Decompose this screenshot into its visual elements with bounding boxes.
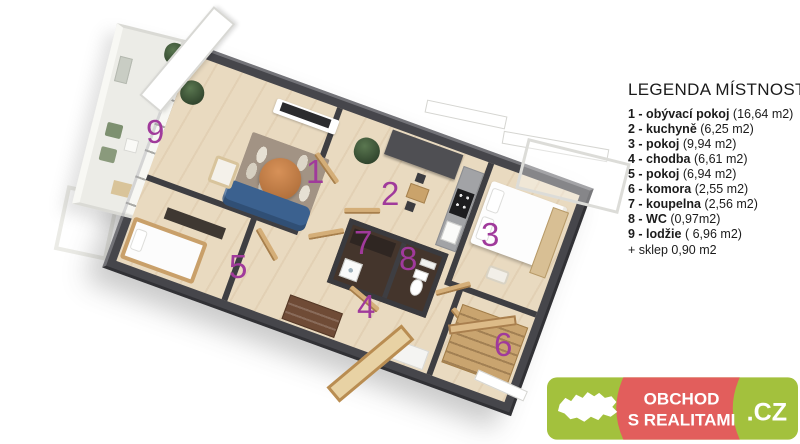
legend-item-area: (6,25 m2) <box>700 122 754 136</box>
balcony-chair <box>98 146 117 163</box>
legend-item-label: 2 - kuchyně <box>628 122 697 136</box>
legend-item: 9 - lodžie ( 6,96 m2) <box>628 227 800 242</box>
kitchen-plant <box>350 134 383 167</box>
legend-item-area: (2,56 m2) <box>704 197 758 211</box>
logo-red-band <box>616 377 739 439</box>
legend-item-area: (6,61 m2) <box>694 152 748 166</box>
room-number-3: 3 <box>481 218 499 251</box>
tv-stand <box>273 98 340 135</box>
balcony-table <box>123 138 139 154</box>
legend-item: 7 - koupelna (2,56 m2) <box>628 197 800 212</box>
legend-item: 8 - WC (0,97m2) <box>628 212 800 227</box>
room-number-2: 2 <box>381 177 399 210</box>
legend-item-label: 8 - WC <box>628 212 667 226</box>
legend-item-area: (6,94 m2) <box>683 167 737 181</box>
room-number-9: 9 <box>146 115 164 148</box>
kitchen-counter <box>384 130 463 180</box>
legend-item-label: 4 - chodba <box>628 152 691 166</box>
open-window-panel <box>425 100 508 130</box>
logo-text-obchod: OBCHOD <box>644 389 720 408</box>
room-number-6: 6 <box>494 328 512 361</box>
logo-svg: OBCHOD S REALITAMI .CZ <box>547 377 798 440</box>
apartment <box>102 40 594 416</box>
room-number-8: 8 <box>399 242 417 275</box>
pillow <box>485 187 505 214</box>
legend-item: 6 - komora (2,55 m2) <box>628 182 800 197</box>
bedroom-chair <box>485 265 510 286</box>
door-leaf <box>344 208 380 214</box>
room-number-4: 4 <box>357 290 375 323</box>
room-number-7: 7 <box>354 226 372 259</box>
kitchen-sink <box>440 221 462 245</box>
legend-item: 5 - pokoj (6,94 m2) <box>628 167 800 182</box>
legend-item-area: (16,64 m2) <box>733 107 793 121</box>
room-number-1: 1 <box>306 155 324 188</box>
legend-item: 4 - chodba (6,61 m2) <box>628 152 800 167</box>
legend-item-label: 5 - pokoj <box>628 167 679 181</box>
legend-item: 2 - kuchyně (6,25 m2) <box>628 122 800 137</box>
room-number-5: 5 <box>229 250 247 283</box>
bath-wc-block <box>327 218 449 318</box>
legend-item-label: 7 - koupelna <box>628 197 701 211</box>
chair <box>404 201 416 213</box>
legend-item-label: 9 - lodžie <box>628 227 681 241</box>
legend-item-area: ( 6,96 m2) <box>685 227 742 241</box>
washing-machine <box>339 258 363 282</box>
legend-item: 1 - obývací pokoj (16,64 m2) <box>628 107 800 122</box>
logo-text-cz: .CZ <box>747 399 787 427</box>
legend-item: 3 - pokoj (9,94 m2) <box>628 137 800 152</box>
legend: LEGENDA MÍSTNOSTÍ 1 - obývací pokoj (16,… <box>628 80 800 258</box>
legend-item-area: (9,94 m2) <box>683 137 737 151</box>
legend-title: LEGENDA MÍSTNOSTÍ <box>628 80 800 100</box>
balcony-chair <box>105 122 124 139</box>
pillow <box>129 228 148 253</box>
door-leaf <box>255 227 278 261</box>
legend-item-area: (0,97m2) <box>670 212 720 226</box>
legend-note: + sklep 0,90 m2 <box>628 243 800 258</box>
wc-sink <box>419 258 436 270</box>
door-leaf <box>308 228 344 240</box>
legend-item-label: 3 - pokoj <box>628 137 679 151</box>
logo-obchod-s-realitami: OBCHOD S REALITAMI .CZ <box>547 377 798 440</box>
tv <box>280 102 332 128</box>
floorplan-screenshot: 1 2 3 4 5 6 7 8 9 LEGENDA MÍSTNOSTÍ 1 - … <box>0 0 800 444</box>
legend-item-area: (2,55 m2) <box>695 182 749 196</box>
balcony-planter <box>114 56 133 84</box>
legend-item-label: 6 - komora <box>628 182 691 196</box>
legend-item-label: 1 - obývací pokoj <box>628 107 729 121</box>
logo-text-s-realitami: S REALITAMI <box>628 411 736 430</box>
chair <box>415 173 427 185</box>
hall-dresser <box>281 294 343 338</box>
